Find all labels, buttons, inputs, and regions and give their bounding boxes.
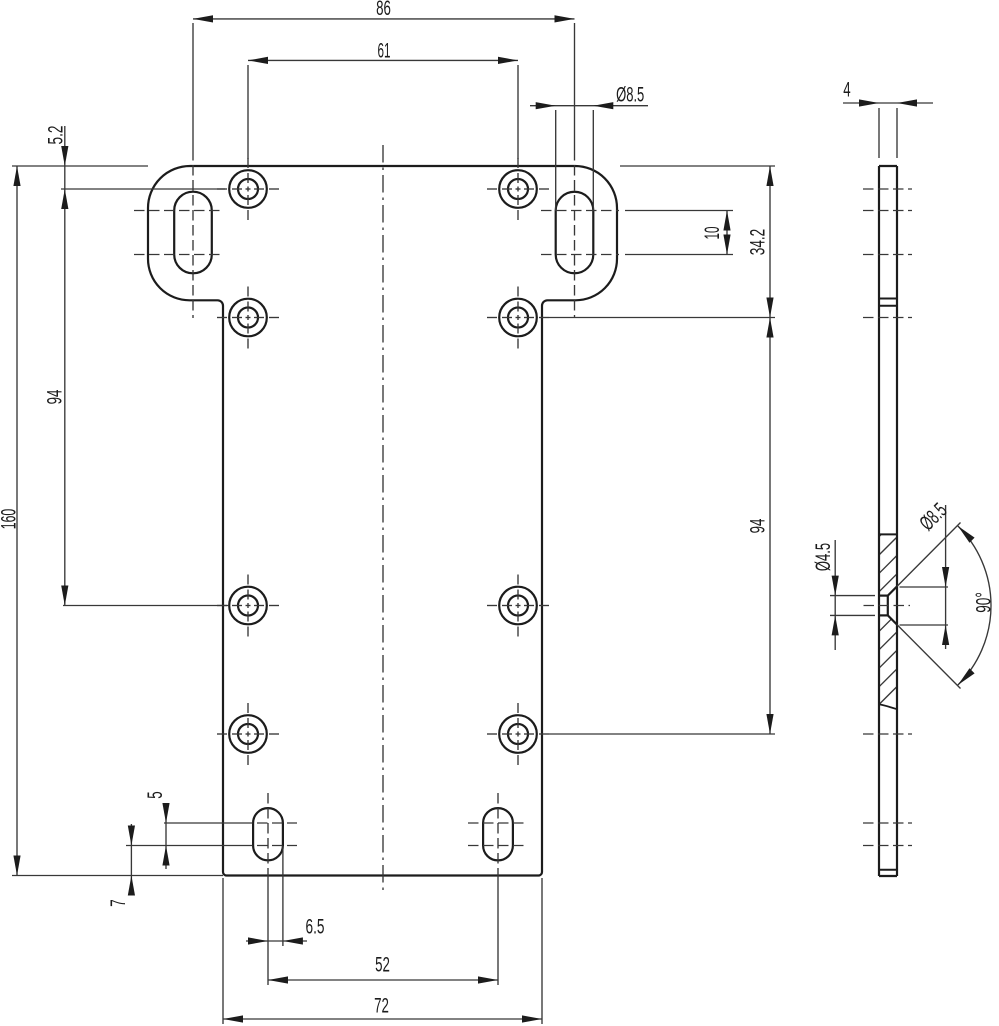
svg-text:94: 94 (747, 518, 770, 533)
svg-text:10: 10 (701, 227, 724, 240)
svg-text:Ø8.5: Ø8.5 (616, 84, 644, 107)
svg-text:61: 61 (378, 40, 391, 63)
svg-text:6.5: 6.5 (306, 916, 325, 939)
svg-text:90°: 90° (973, 592, 996, 613)
svg-text:86: 86 (376, 0, 391, 20)
svg-text:Ø4.5: Ø4.5 (812, 543, 835, 571)
svg-text:4: 4 (843, 79, 851, 102)
svg-text:160: 160 (0, 509, 21, 529)
svg-text:7: 7 (107, 899, 130, 906)
svg-text:72: 72 (374, 995, 389, 1018)
svg-text:34.2: 34.2 (747, 229, 770, 255)
svg-text:94: 94 (44, 389, 67, 404)
svg-text:5: 5 (144, 791, 167, 798)
svg-text:52: 52 (375, 954, 390, 977)
svg-text:5.2: 5.2 (45, 126, 68, 145)
